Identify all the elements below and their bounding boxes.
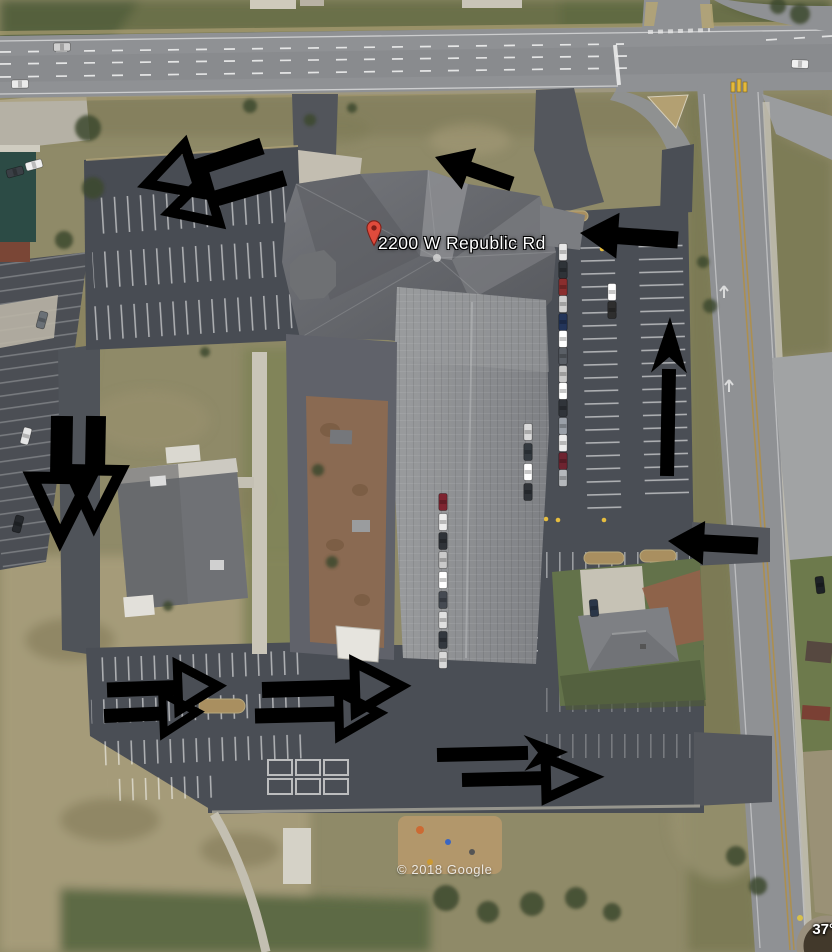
vehicle	[53, 43, 70, 52]
tree	[163, 601, 173, 611]
tree	[82, 177, 104, 199]
vehicle	[524, 464, 532, 481]
vehicle	[439, 552, 447, 569]
vehicle	[815, 576, 825, 594]
vehicle	[439, 612, 447, 629]
mulch-island	[640, 550, 676, 562]
vehicle	[791, 59, 808, 68]
map-pin-icon[interactable]	[366, 219, 382, 248]
concrete-pad	[283, 828, 311, 884]
tree	[697, 256, 709, 268]
vehicle	[559, 244, 567, 261]
vehicle	[608, 302, 616, 319]
aerial-imagery	[0, 0, 832, 952]
southeast-exit-drive	[694, 732, 772, 806]
tree	[726, 846, 746, 866]
tree	[326, 556, 338, 568]
tree	[477, 901, 499, 923]
playground	[398, 816, 502, 874]
mulch-island	[199, 699, 245, 713]
tree	[55, 231, 73, 249]
vehicle	[559, 453, 567, 470]
vehicle	[559, 418, 567, 435]
vehicle	[559, 366, 567, 383]
vehicle	[439, 514, 447, 531]
vehicle	[559, 383, 567, 400]
vehicle	[439, 592, 447, 609]
tree	[749, 877, 767, 895]
tree	[75, 115, 101, 141]
vehicle	[524, 444, 532, 461]
mulch-island	[584, 552, 624, 564]
tree	[243, 99, 257, 113]
tree	[347, 103, 357, 113]
vehicle	[439, 632, 447, 649]
vehicle	[439, 652, 447, 669]
vehicle	[559, 470, 567, 487]
vehicle	[559, 314, 567, 331]
tree	[304, 114, 316, 126]
vehicle	[559, 435, 567, 452]
vehicle	[559, 262, 567, 279]
vehicle	[524, 484, 532, 501]
vehicle	[589, 599, 599, 617]
tree	[703, 299, 717, 313]
tree	[312, 464, 324, 476]
vehicle	[439, 494, 447, 511]
tree	[790, 4, 810, 24]
vehicle	[559, 296, 567, 313]
tree	[200, 347, 210, 357]
vehicle	[559, 331, 567, 348]
tree	[565, 887, 587, 909]
vehicle	[559, 348, 567, 365]
vehicle	[608, 284, 616, 301]
tree	[520, 892, 544, 916]
vehicle	[524, 424, 532, 441]
vehicle	[439, 572, 447, 589]
tree	[433, 885, 459, 911]
vehicle	[559, 279, 567, 296]
north-entrance-drive	[292, 94, 338, 160]
tree	[603, 903, 621, 921]
vehicle	[559, 400, 567, 417]
vehicle	[439, 533, 447, 550]
satellite-map-canvas[interactable]: 2200 W Republic Rd © 2018 Google 37°	[0, 0, 832, 952]
vehicle	[11, 80, 28, 89]
